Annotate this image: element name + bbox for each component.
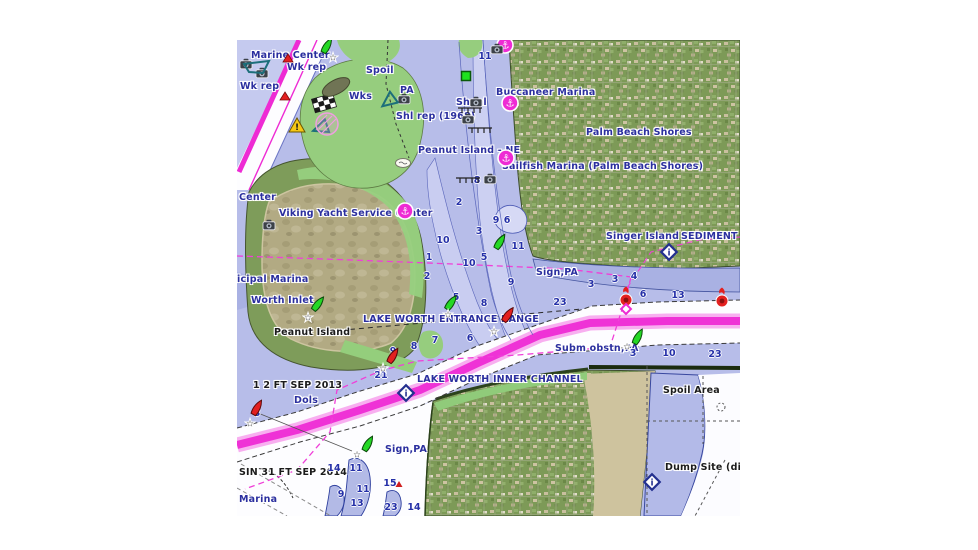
map-label: Spoil — [366, 65, 394, 76]
depth-sounding: 2 — [456, 198, 463, 208]
depth-sounding: 9 — [338, 490, 345, 500]
red-triangle-icon — [282, 53, 294, 63]
map-label: Sailfish Marina (Palm Beach Shores) — [502, 161, 703, 172]
spoil-mound-icon — [317, 75, 355, 99]
depth-sounding: 11 — [511, 242, 524, 252]
pier-icon — [455, 176, 481, 184]
depth-sounding: 14 — [327, 464, 340, 474]
map-label: Wk rep — [287, 62, 326, 73]
svg-text:i: i — [667, 249, 670, 259]
teal-triangle-icon — [378, 87, 401, 108]
map-label: Sign,PA — [536, 267, 578, 278]
map-label: Marina — [239, 494, 277, 505]
depth-sounding: 11 — [349, 464, 362, 474]
map-label: icipal Marina — [237, 274, 309, 285]
depth-sounding: 10 — [662, 349, 675, 359]
depth-sounding: 3 — [612, 275, 619, 285]
map-label: SEDIMENT — [681, 231, 738, 242]
pier-icon — [457, 106, 483, 114]
marina-icon[interactable]: ⚓ — [501, 94, 520, 113]
depth-sounding: 23 — [708, 350, 721, 360]
red-light-buoy-icon[interactable] — [713, 287, 731, 309]
map-label: LAKE WORTH INNER CHANNEL — [417, 374, 583, 385]
depth-sounding: 14 — [407, 503, 420, 513]
depth-sounding: 10 — [462, 259, 475, 269]
map-label: Sign,PA — [385, 444, 427, 455]
depth-sounding: 8 — [411, 342, 418, 352]
map-label: Peanut Island — [274, 327, 350, 338]
star-icon: ☆ — [351, 448, 363, 460]
depth-sounding: 2 — [424, 272, 431, 282]
depth-sounding: 9 — [493, 216, 500, 226]
info-diamond-icon[interactable]: i — [657, 240, 681, 264]
depth-sounding: 6 — [504, 216, 511, 226]
depth-sounding: 11 — [356, 485, 369, 495]
map-label: Dump Site (di — [665, 462, 740, 473]
depth-sounding: 13 — [350, 499, 363, 509]
depth-sounding: 8 — [481, 299, 488, 309]
hatched-circle-icon — [313, 110, 341, 138]
star-icon: ☆ — [621, 340, 633, 352]
map-label: Center — [239, 192, 276, 203]
camera-icon[interactable] — [461, 113, 475, 125]
map-label: Wk rep — [240, 81, 279, 92]
depth-sounding: 5 — [481, 253, 488, 263]
star-icon: ☆ — [442, 308, 454, 320]
map-label: 1 2 FT SEP 2013 — [253, 380, 342, 391]
map-label: Palm Beach Shores — [586, 127, 692, 138]
depth-sounding: 3 — [476, 227, 483, 237]
depth-sounding: 6 — [640, 290, 647, 300]
svg-text:i: i — [404, 390, 407, 400]
svg-text:☆: ☆ — [444, 311, 452, 321]
marina-icon[interactable]: ⚓ — [396, 202, 415, 221]
svg-text:☆: ☆ — [623, 343, 631, 353]
info-diamond-icon[interactable]: i — [394, 381, 418, 405]
svg-text:☆: ☆ — [329, 54, 337, 64]
depth-sounding: 23 — [553, 298, 566, 308]
map-label: Worth Inlet — [251, 295, 314, 306]
chart-map[interactable]: Marine CenterWk repWk repSpoilWksPAShoal… — [237, 40, 740, 516]
camera-icon[interactable] — [483, 173, 497, 185]
star-icon: ☆ — [377, 362, 389, 374]
star-icon: ☆ — [302, 311, 314, 323]
depth-sounding: 13 — [671, 291, 684, 301]
marina-icon[interactable]: ⚓ — [497, 149, 516, 168]
svg-text:⚓: ⚓ — [401, 207, 410, 218]
chart-overlay: Marine CenterWk repWk repSpoilWksPAShoal… — [237, 40, 740, 516]
depth-sounding: 9 — [508, 278, 515, 288]
chartplotter-screenshot: Marine CenterWk repWk repSpoilWksPAShoal… — [0, 0, 978, 550]
teal-quad-icon — [242, 59, 274, 77]
star-icon: ☆ — [488, 325, 500, 337]
green-square-icon[interactable] — [460, 70, 472, 82]
rock-triangle-icon — [395, 480, 404, 488]
star-icon: ☆ — [327, 51, 339, 63]
camera-icon[interactable] — [262, 219, 276, 231]
svg-text:☆: ☆ — [246, 420, 254, 430]
info-diamond-icon[interactable]: i — [640, 470, 664, 494]
svg-text:☆: ☆ — [353, 451, 361, 461]
white-islet-icon — [394, 157, 412, 169]
depth-sounding: 6 — [467, 334, 474, 344]
svg-text:⚓: ⚓ — [502, 154, 511, 165]
magenta-diamond-icon — [618, 301, 634, 317]
svg-text:☆: ☆ — [304, 314, 312, 324]
warning-triangle-icon[interactable]: ! — [288, 117, 306, 133]
pier-icon — [467, 126, 493, 134]
depth-sounding: 10 — [436, 236, 449, 246]
map-label: Dols — [294, 395, 318, 406]
svg-text:i: i — [650, 479, 653, 489]
depth-sounding: 4 — [631, 272, 638, 282]
camera-icon[interactable] — [490, 43, 504, 55]
svg-text:⚓: ⚓ — [506, 99, 515, 110]
depth-sounding: 1 — [426, 253, 433, 263]
depth-sounding: 7 — [432, 336, 439, 346]
svg-text:!: ! — [295, 123, 299, 133]
map-label: Spoil Area — [663, 385, 720, 396]
depth-sounding: 23 — [384, 503, 397, 513]
svg-text:☆: ☆ — [490, 328, 498, 338]
depth-sounding: 3 — [588, 280, 595, 290]
green-buoy-icon[interactable] — [488, 229, 512, 254]
red-triangle-icon — [279, 91, 291, 101]
star-icon: ☆ — [244, 417, 256, 429]
svg-text:☆: ☆ — [379, 365, 387, 375]
